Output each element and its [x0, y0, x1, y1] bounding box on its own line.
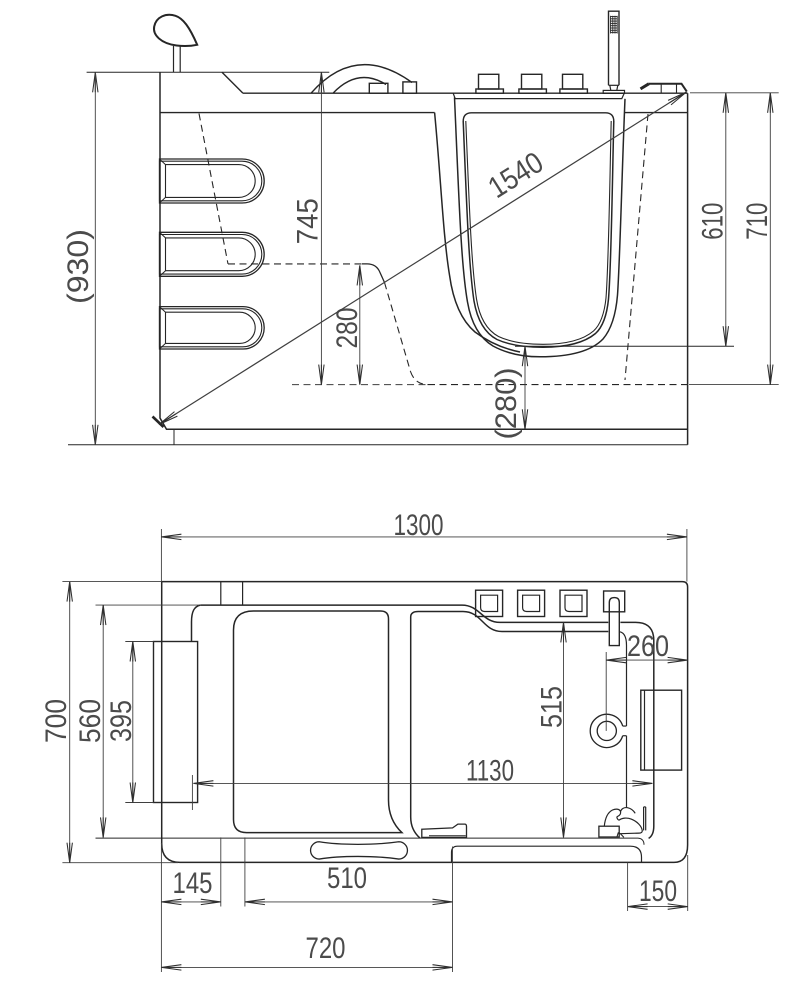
svg-text:515: 515 — [536, 686, 569, 728]
svg-text:700: 700 — [40, 699, 73, 743]
svg-text:(280): (280) — [490, 368, 523, 440]
svg-text:(930): (930) — [62, 229, 95, 304]
svg-text:720: 720 — [306, 932, 346, 965]
svg-text:745: 745 — [292, 198, 325, 244]
svg-text:710: 710 — [741, 203, 774, 240]
svg-text:260: 260 — [627, 630, 669, 663]
svg-text:1130: 1130 — [466, 755, 514, 788]
svg-text:1540: 1540 — [483, 146, 550, 205]
svg-text:395: 395 — [105, 700, 138, 742]
svg-text:510: 510 — [327, 862, 367, 895]
svg-text:1300: 1300 — [394, 509, 444, 542]
svg-text:610: 610 — [697, 203, 730, 240]
svg-text:150: 150 — [639, 875, 677, 908]
svg-text:145: 145 — [173, 867, 213, 900]
svg-text:560: 560 — [74, 699, 107, 743]
